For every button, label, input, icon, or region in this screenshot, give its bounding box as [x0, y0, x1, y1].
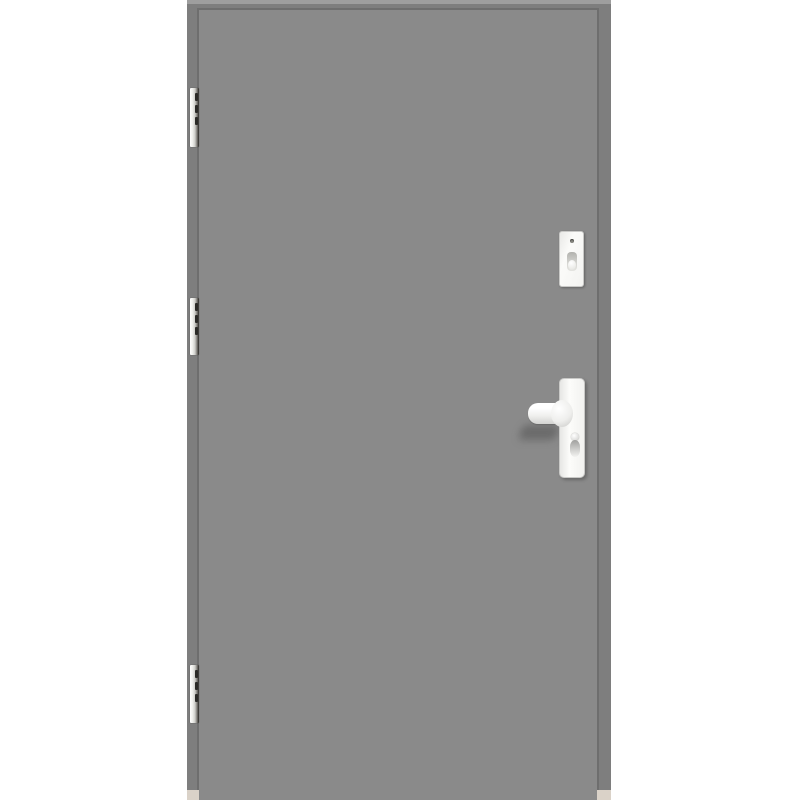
hinge-knuckle [195, 105, 198, 113]
screw-icon [570, 239, 574, 243]
hinge-knuckle [195, 694, 198, 702]
product-photo [0, 0, 800, 800]
handle-backplate [559, 378, 585, 478]
hinge-top-icon [190, 88, 199, 147]
hinge-knuckle [195, 682, 198, 690]
hinge-knuckle [195, 303, 198, 311]
lock-cylinder-plate [559, 231, 584, 287]
left-jamb-floor-cut [187, 790, 199, 800]
right-jamb-floor-cut [597, 790, 611, 800]
hinge-middle-icon [190, 298, 199, 355]
hinge-knuckle [195, 670, 198, 678]
door-assembly [187, 0, 611, 800]
door-lever-boss [551, 400, 573, 427]
lever-shadow [518, 425, 560, 440]
hinge-knuckle [195, 327, 198, 335]
hinge-bottom-icon [190, 665, 199, 723]
key-cover-icon [567, 252, 577, 271]
euro-cylinder-icon [570, 440, 580, 457]
key-cover-knob [568, 260, 576, 270]
door-frame-top-edge [187, 0, 611, 4]
hinge-knuckle [195, 117, 198, 125]
hinge-knuckle [195, 93, 198, 101]
hinge-knuckle [195, 315, 198, 323]
